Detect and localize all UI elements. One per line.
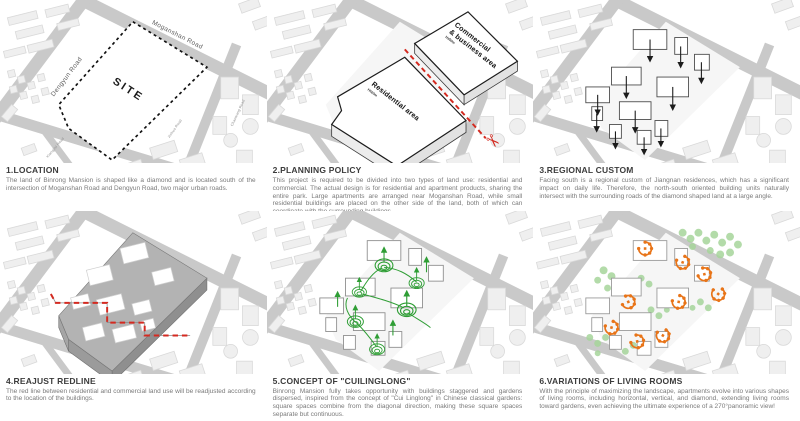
regional-custom-diagram (533, 0, 800, 163)
caption-body-planning-policy: This project is required to be divided i… (273, 177, 523, 211)
panel-location: Moganshan Road Dengyun Road SITE Jinhua … (0, 0, 267, 211)
caption-title-cuilinglong: 5.CONCEPT OF "CUILINGLONG" (273, 376, 523, 386)
reajust-redline-diagram (0, 211, 267, 374)
caption-title-reajust-redline: 4.REAJUST REDLINE (6, 376, 256, 386)
caption-regional-custom: 3.REGIONAL CUSTOM Facing south is a regi… (533, 163, 800, 211)
caption-planning-policy: 2.PLANNING POLICY This project is requir… (267, 163, 534, 211)
caption-cuilinglong: 5.CONCEPT OF "CUILINGLONG" Binrong Mansi… (267, 374, 534, 421)
caption-title-living-rooms: 6.VARIATIONS OF LIVING ROOMS (539, 376, 789, 386)
location-diagram: Moganshan Road Dengyun Road SITE Jinhua … (0, 0, 267, 163)
cuilinglong-diagram (267, 211, 534, 374)
caption-location: 1.LOCATION The land of Binrong Mansion i… (0, 163, 267, 211)
panel-living-room-variations: 6.VARIATIONS OF LIVING ROOMS With the pr… (533, 211, 800, 421)
caption-body-living-rooms: With the principle of maximizing the lan… (539, 388, 789, 411)
panel-regional-custom: 3.REGIONAL CUSTOM Facing south is a regi… (533, 0, 800, 211)
caption-body-location: The land of Binrong Mansion is shaped li… (6, 177, 256, 193)
caption-title-planning-policy: 2.PLANNING POLICY (273, 165, 523, 175)
living-rooms-diagram (533, 211, 800, 374)
caption-body-cuilinglong: Binrong Mansion fully takes opportunity … (273, 388, 523, 419)
caption-living-rooms: 6.VARIATIONS OF LIVING ROOMS With the pr… (533, 374, 800, 421)
caption-reajust-redline: 4.REAJUST REDLINE The red line between r… (0, 374, 267, 421)
caption-title-regional-custom: 3.REGIONAL CUSTOM (539, 165, 789, 175)
panel-planning-policy: ✂ Commercial & business area H≤50m Resid… (267, 0, 534, 211)
caption-body-reajust-redline: The red line between residential and com… (6, 388, 256, 404)
panel-cuilinglong-concept: 5.CONCEPT OF "CUILINGLONG" Binrong Mansi… (267, 211, 534, 421)
diagram-sheet: Moganshan Road Dengyun Road SITE Jinhua … (0, 0, 800, 421)
road-label-jinhua: Jinhua Road (167, 118, 183, 138)
caption-title-location: 1.LOCATION (6, 165, 256, 175)
planning-policy-diagram: ✂ Commercial & business area H≤50m Resid… (267, 0, 534, 163)
caption-body-regional-custom: Facing south is a regional custom of Jia… (539, 177, 789, 200)
panel-reajust-redline: 4.REAJUST REDLINE The red line between r… (0, 211, 267, 421)
